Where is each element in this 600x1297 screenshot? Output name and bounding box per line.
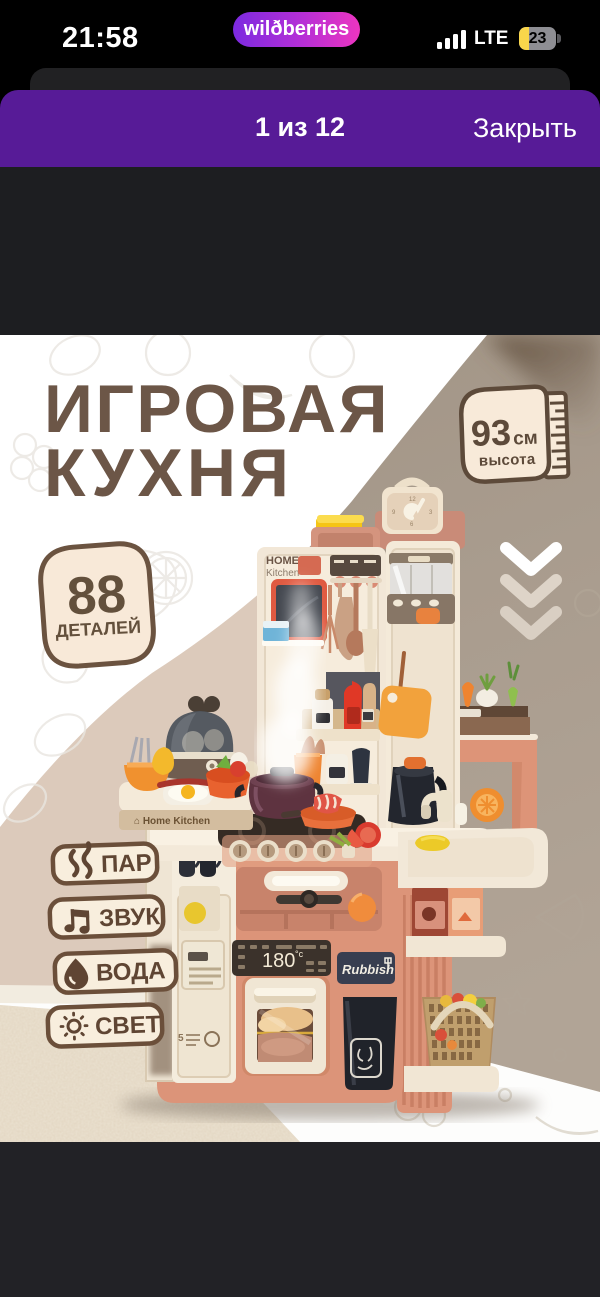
svg-text:СВЕТ: СВЕТ bbox=[95, 1011, 162, 1040]
svg-text:180: 180 bbox=[262, 950, 295, 972]
svg-text:Rubbish: Rubbish bbox=[342, 962, 394, 977]
svg-text:93: 93 bbox=[470, 412, 511, 454]
svg-text:Kitchen: Kitchen bbox=[266, 568, 299, 579]
svg-text:КУХНЯ: КУХНЯ bbox=[44, 435, 293, 511]
svg-text:ВОДА: ВОДА bbox=[96, 957, 166, 986]
svg-text:⌂ Home Kitchen: ⌂ Home Kitchen bbox=[134, 816, 210, 827]
svg-text:5: 5 bbox=[178, 1033, 184, 1044]
svg-text:°c: °c bbox=[295, 949, 304, 959]
svg-text:высота: высота bbox=[479, 451, 537, 470]
svg-text:ЗВУК: ЗВУК bbox=[99, 903, 161, 932]
svg-text:см: см bbox=[513, 428, 538, 450]
svg-text:HOME: HOME bbox=[266, 555, 299, 567]
svg-text:ДЕТАЛЕЙ: ДЕТАЛЕЙ bbox=[55, 616, 141, 641]
svg-text:ПАР: ПАР bbox=[101, 849, 153, 878]
svg-text:12: 12 bbox=[409, 497, 416, 503]
